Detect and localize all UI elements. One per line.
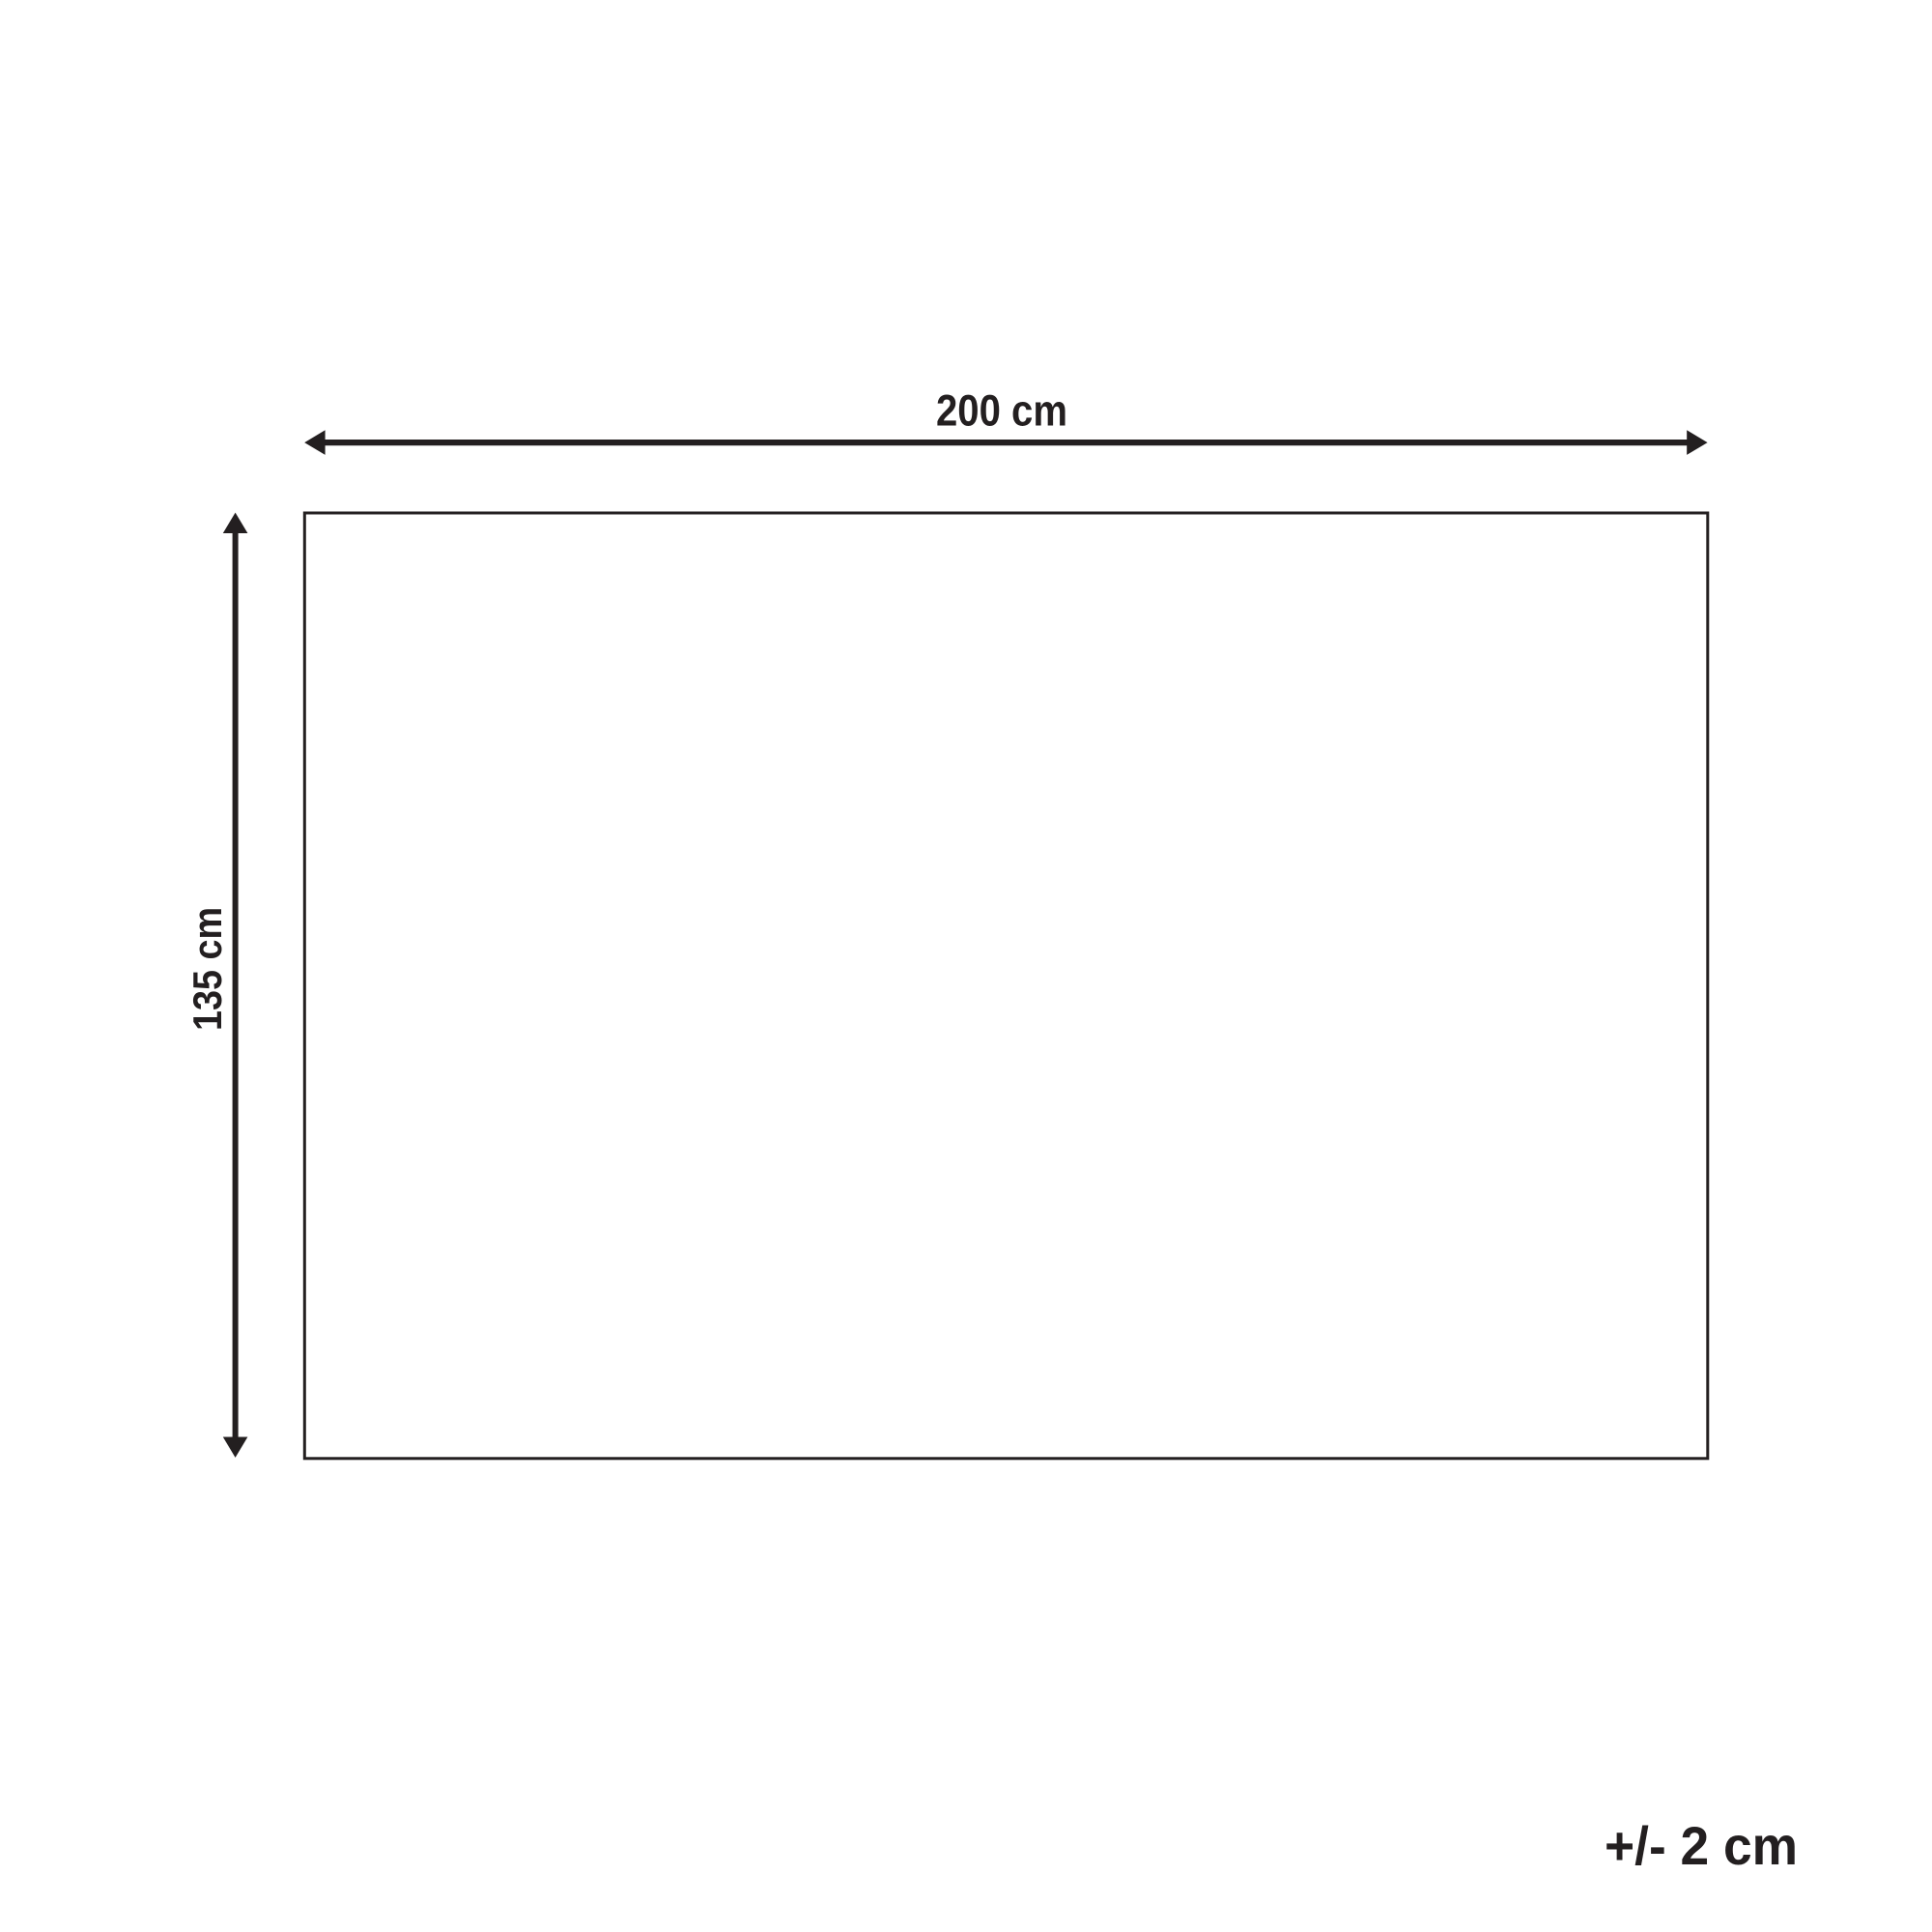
svg-text:+/- 2 cm: +/- 2 cm: [1605, 1816, 1798, 1876]
svg-text:135 cm: 135 cm: [185, 907, 230, 1031]
svg-text:200 cm: 200 cm: [936, 386, 1067, 436]
